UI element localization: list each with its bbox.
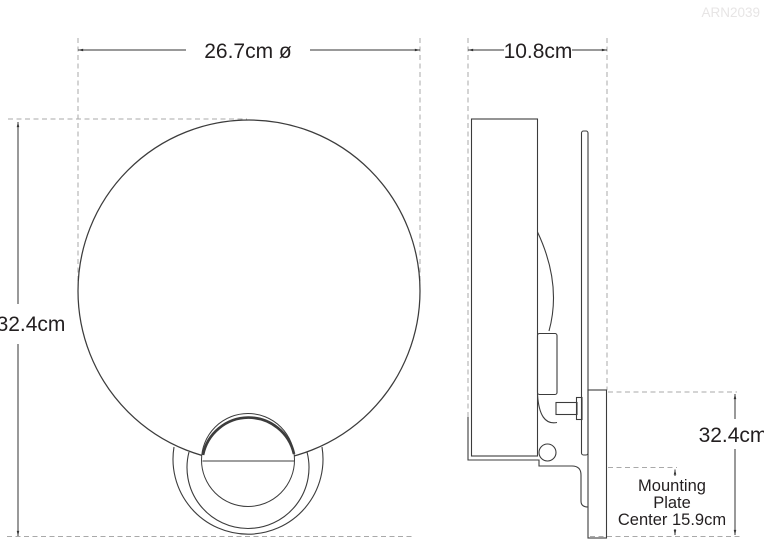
shade-outline-circle	[78, 120, 420, 462]
right-annotations: 32.4cm Mounting Plate Center 15.9cm	[590, 392, 764, 537]
shade-bottom-lip-and-arm	[468, 417, 588, 507]
diameter-dimension-label: 26.7cm ø	[204, 40, 292, 63]
side-view: 10.8cm	[468, 38, 607, 538]
mounting-plate-center-dimension: Mounting Plate Center 15.9cm	[618, 470, 726, 536]
front-view: 26.7cm ø 32.4cm	[0, 38, 420, 537]
glass-ball-circle	[202, 414, 295, 507]
stem-bar	[556, 403, 577, 415]
mounting-note-line-1: Mounting	[638, 477, 706, 495]
side-height-dimension-label: 32.4cm	[699, 424, 764, 447]
shade-profile	[472, 119, 538, 456]
mounting-note-line-2: Plate	[653, 494, 691, 512]
front-height-dimension-label: 32.4cm	[0, 313, 65, 336]
depth-dimension: 10.8cm	[468, 40, 607, 63]
mounting-note-line-3: Center 15.9cm	[618, 511, 726, 529]
depth-dimension-label: 10.8cm	[504, 40, 573, 63]
mounting-plate-profile	[588, 390, 607, 538]
technical-drawing-sheet: 26.7cm ø 32.4cm	[0, 0, 764, 540]
bulb-profile-arc	[538, 232, 554, 331]
ring-side-circle	[539, 444, 556, 461]
sconce-dimension-diagram: 26.7cm ø 32.4cm	[0, 0, 764, 540]
front-height-dimension: 32.4cm	[0, 122, 65, 536]
socket-profile	[538, 334, 558, 395]
product-code-watermark: ARN2039	[701, 5, 760, 20]
bulb-bottom-arc	[538, 395, 558, 423]
diameter-dimension: 26.7cm ø	[78, 40, 420, 63]
